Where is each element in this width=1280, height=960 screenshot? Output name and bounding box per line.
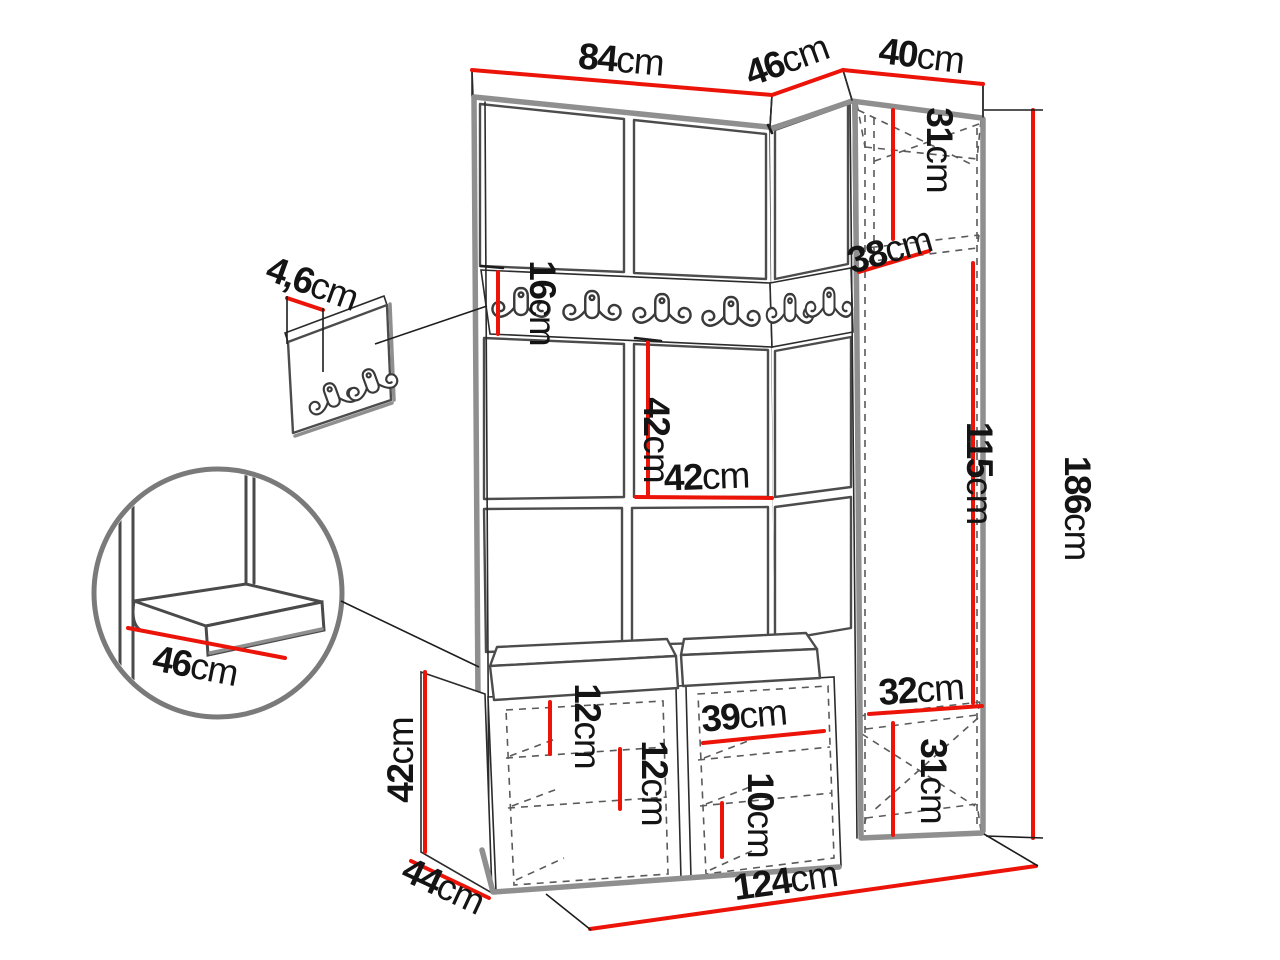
dim-label-115: 115cm (959, 422, 1000, 525)
dim-label-42-bench: 42cm (380, 717, 421, 802)
dim-label-10: 10cm (740, 772, 781, 857)
upholstered-panel (634, 120, 766, 279)
dim-label-31-bottom: 31cm (913, 738, 954, 823)
dim-label-12-a: 12cm (567, 683, 608, 768)
wardrobe-corner-face (770, 100, 852, 650)
upholstered-panel (775, 337, 851, 497)
diagram-canvas: 84cm 46cm 40cm 31cm 38cm 115cm 186cm 16c… (0, 0, 1280, 960)
upholstered-panel (480, 104, 624, 272)
dim-label-16: 16cm (522, 260, 563, 345)
dim-label-32: 32cm (877, 666, 965, 713)
furniture-dimension-diagram: 84cm 46cm 40cm 31cm 38cm 115cm 186cm 16c… (0, 0, 1280, 960)
dim-label-31-top: 31cm (919, 107, 960, 192)
upholstered-panel (484, 508, 622, 652)
dim-label-186: 186cm (1057, 456, 1098, 561)
dim-line-42-horizontal (636, 497, 772, 498)
upholstered-panel (484, 338, 624, 499)
wardrobe-left-face (473, 96, 775, 655)
upholstered-panel (632, 507, 768, 645)
dim-label-42-h: 42cm (663, 455, 750, 499)
upholstered-panel (775, 104, 848, 279)
dim-label-12-b: 12cm (634, 740, 675, 825)
upholstered-panel (775, 497, 851, 641)
dim-label-84: 84cm (577, 35, 666, 83)
dim-label-39: 39cm (700, 691, 789, 739)
